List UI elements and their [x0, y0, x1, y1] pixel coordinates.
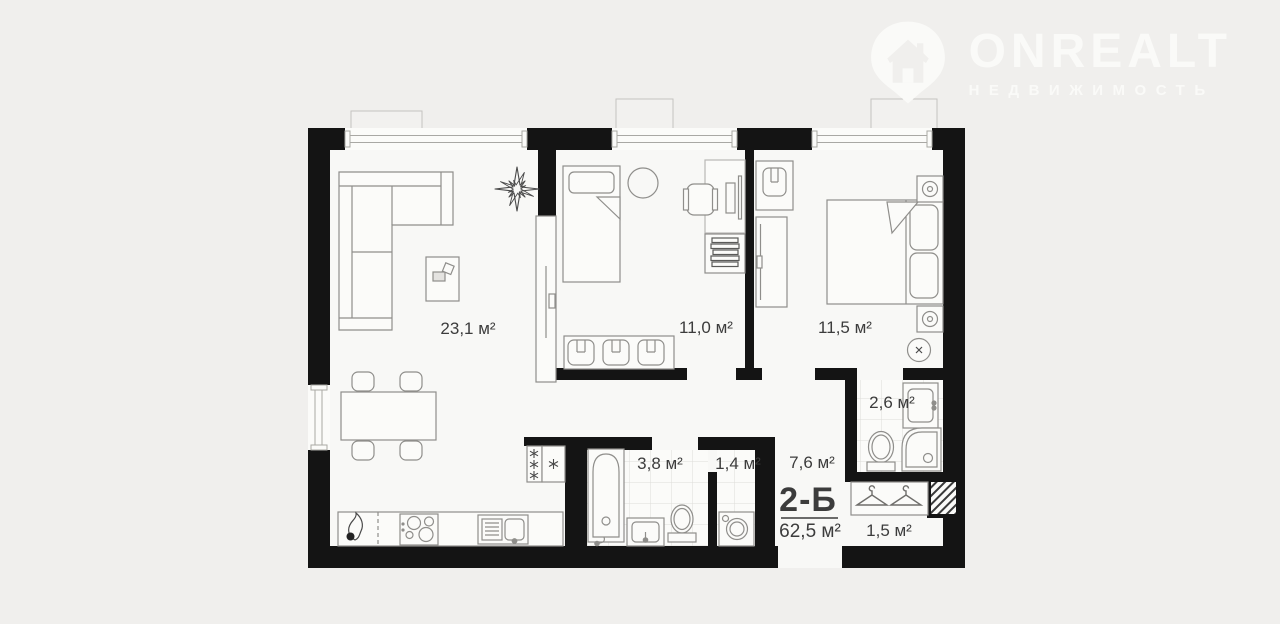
double-bed	[827, 200, 943, 304]
roof-protrusions	[351, 99, 937, 131]
window-living	[345, 128, 527, 150]
floorplan-page: 23,1 м² 11,0 м² 11,5 м² 2,6 м² 3,8 м² 1,…	[0, 0, 1280, 624]
brand-name: ONREALT	[969, 28, 1232, 76]
coffee-table	[426, 257, 459, 301]
brand-tagline: НЕДВИЖИМОСТЬ	[969, 82, 1232, 99]
nightstand	[917, 176, 943, 202]
floor-lamp-icon	[908, 339, 931, 362]
ensuite-area-label: 2,6 м²	[869, 393, 915, 412]
shelving	[705, 234, 745, 273]
dining-chair	[352, 441, 374, 460]
desk-chair	[684, 184, 718, 215]
living-area-label: 23,1 м²	[440, 319, 495, 338]
bedroom2-area-label: 11,5 м²	[818, 318, 872, 337]
unit-total-area: 62,5 м²	[779, 521, 841, 542]
logo-pin-icon	[863, 18, 953, 108]
kitchen-counter	[338, 512, 563, 546]
fridge	[527, 446, 565, 482]
window-kitchen	[308, 385, 330, 450]
dining-chair	[352, 372, 374, 391]
toilet	[867, 432, 895, 472]
nightstand	[917, 306, 943, 332]
wardrobe-area-label: 1,5 м²	[866, 521, 912, 540]
entrance-opening	[778, 546, 842, 568]
bathtub	[588, 449, 624, 546]
shower	[902, 428, 941, 471]
dining-chair	[400, 372, 422, 391]
logo: ONREALT НЕДВИЖИМОСТЬ	[863, 18, 1232, 108]
wardrobe-cabinet	[756, 161, 793, 210]
logo-text: ONREALT НЕДВИЖИМОСТЬ	[969, 28, 1232, 99]
bathroom-sink	[627, 518, 664, 546]
wc-area-label: 1,4 м²	[715, 454, 761, 473]
sliding-closet	[756, 217, 787, 307]
single-bed	[563, 166, 620, 282]
hallway-area-label: 7,6 м²	[789, 453, 835, 472]
hanger-rail	[851, 482, 928, 515]
window-bedroom2	[812, 128, 932, 150]
dresser	[564, 336, 674, 369]
cooktop	[400, 514, 438, 545]
unit-title: 2-Б	[779, 481, 837, 519]
bathroom-area-label: 3,8 м²	[637, 454, 683, 473]
window-bedroom1	[612, 128, 737, 150]
dining-chair	[400, 441, 422, 460]
washing-machine	[719, 512, 754, 546]
sliding-door-panel	[536, 216, 556, 382]
dining-table	[341, 392, 436, 440]
kitchen-sink	[478, 515, 528, 544]
vent-shaft	[929, 480, 958, 516]
bedroom1-area-label: 11,0 м²	[679, 318, 733, 337]
